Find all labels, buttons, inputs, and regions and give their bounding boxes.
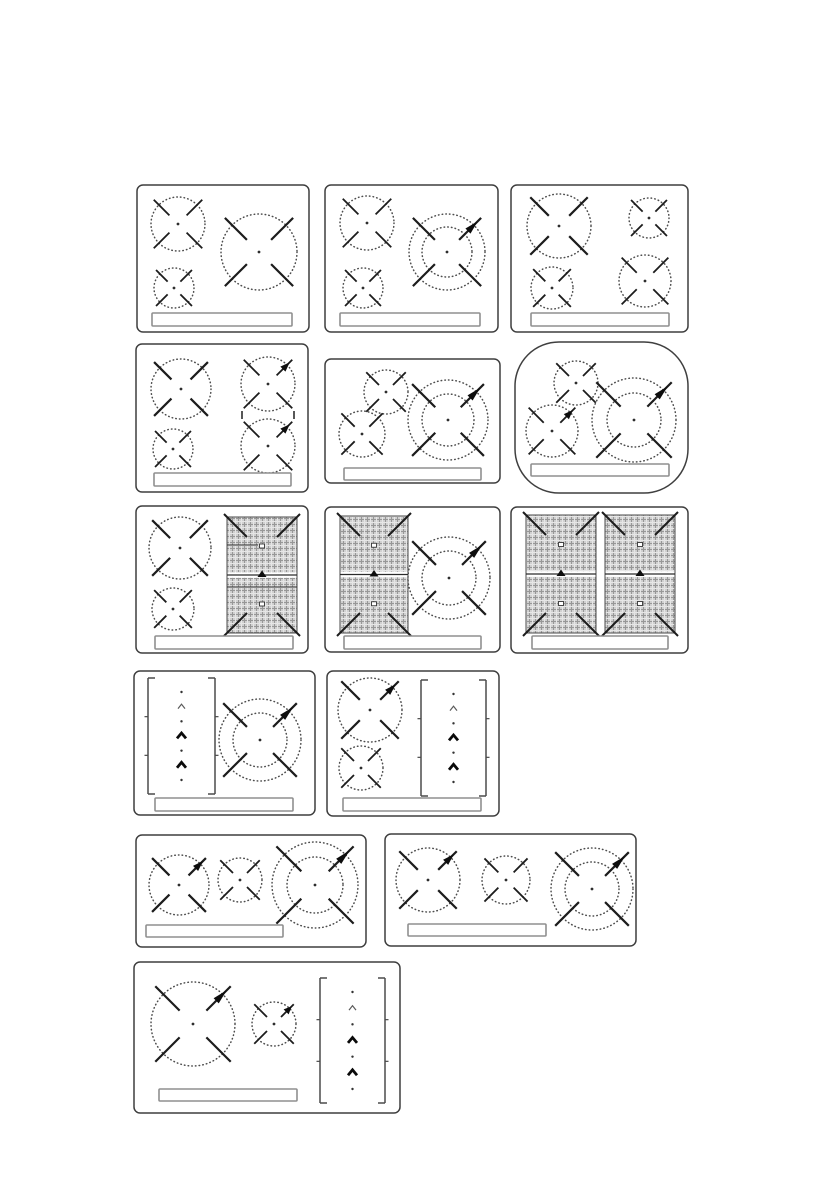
center-dot [427,879,430,882]
center-dot [267,445,270,448]
center-dot [273,1023,276,1026]
dot-marker [452,693,454,695]
control-strip [344,636,481,649]
control-strip [155,636,293,649]
center-dot [446,251,449,254]
control-strip [343,798,481,811]
dot-marker [180,779,182,781]
center-dot [447,419,450,422]
cooktop-2-zone-slider-right [322,666,504,821]
dot-marker [351,1088,353,1090]
dot-marker [351,1023,353,1025]
center-dot [448,577,451,580]
control-strip [146,925,283,937]
control-strip [531,464,669,476]
center-dot [180,388,183,391]
dot-marker [180,749,182,751]
center-dot [551,430,554,433]
cooktop-4-zone-bridge [131,339,313,497]
center-dot [360,767,363,770]
center-dot [369,709,372,712]
zone-center-marker [559,543,564,547]
control-strip [154,473,291,486]
cooktop-diagrams-sheet [0,0,840,1190]
flex-zone [523,512,599,636]
cooktop-outline [511,185,688,332]
center-dot [267,383,270,386]
zone-center-marker [638,543,643,547]
zone-center-marker [559,602,564,606]
dot-marker [351,991,353,993]
center-dot [259,739,262,742]
center-dot [314,884,317,887]
zone-center-marker [260,544,265,548]
control-strip [344,468,481,480]
center-dot [385,391,388,394]
cooktop-3-zone-double-ring [320,180,503,337]
zone-center-marker [372,602,377,606]
center-dot [362,287,365,290]
control-strip [532,636,668,649]
cooktop-2-zone-slider-inline [129,957,405,1118]
cooktop-outline [137,185,309,332]
cooktop-3-zone-inline [131,830,371,952]
center-dot [172,448,175,451]
center-dot [192,1023,195,1026]
dot-marker [180,720,182,722]
dot-marker [452,722,454,724]
control-strip [152,313,292,326]
center-dot [361,433,364,436]
center-dot [558,225,561,228]
cooktop-2-zone-flex-right [131,501,313,658]
cooktop-3-zone-compact [320,354,505,488]
control-strip [531,313,669,326]
zone-center-marker [638,602,643,606]
dot-marker [180,691,182,693]
cooktop-3-zone-inline-wide [380,829,641,951]
center-dot [173,287,176,290]
zone-center-marker [372,543,377,547]
center-dot [648,217,651,220]
center-dot [178,884,181,887]
cooktop-flex-left-double-ring [320,502,505,657]
center-dot [551,287,554,290]
dot-marker [351,1055,353,1057]
cooktop-slider-left-double-ring [129,666,320,820]
flex-zone [224,514,300,636]
cooktop-double-flex [506,502,693,658]
center-dot [239,879,242,882]
control-strip [340,313,480,326]
center-dot [179,547,182,550]
dot-marker [452,751,454,753]
center-dot [633,419,636,422]
dot-marker [452,781,454,783]
center-dot [366,222,369,225]
center-dot [644,280,647,283]
center-dot [591,888,594,891]
cooktop-3-zone-rounded [510,337,693,498]
flex-zone [337,513,411,636]
control-strip [408,924,546,936]
control-strip [155,798,293,811]
flex-zone [602,512,678,636]
zone-center-marker [260,602,265,606]
center-dot [177,223,180,226]
center-dot [258,251,261,254]
center-dot [172,608,175,611]
center-dot [575,382,578,385]
cooktop-3-zone [132,180,314,337]
center-dot [505,879,508,882]
cooktop-outline [134,671,315,815]
appliance-manual-page [0,0,840,1190]
control-strip [159,1089,297,1101]
cooktop-4-zone [506,180,693,337]
